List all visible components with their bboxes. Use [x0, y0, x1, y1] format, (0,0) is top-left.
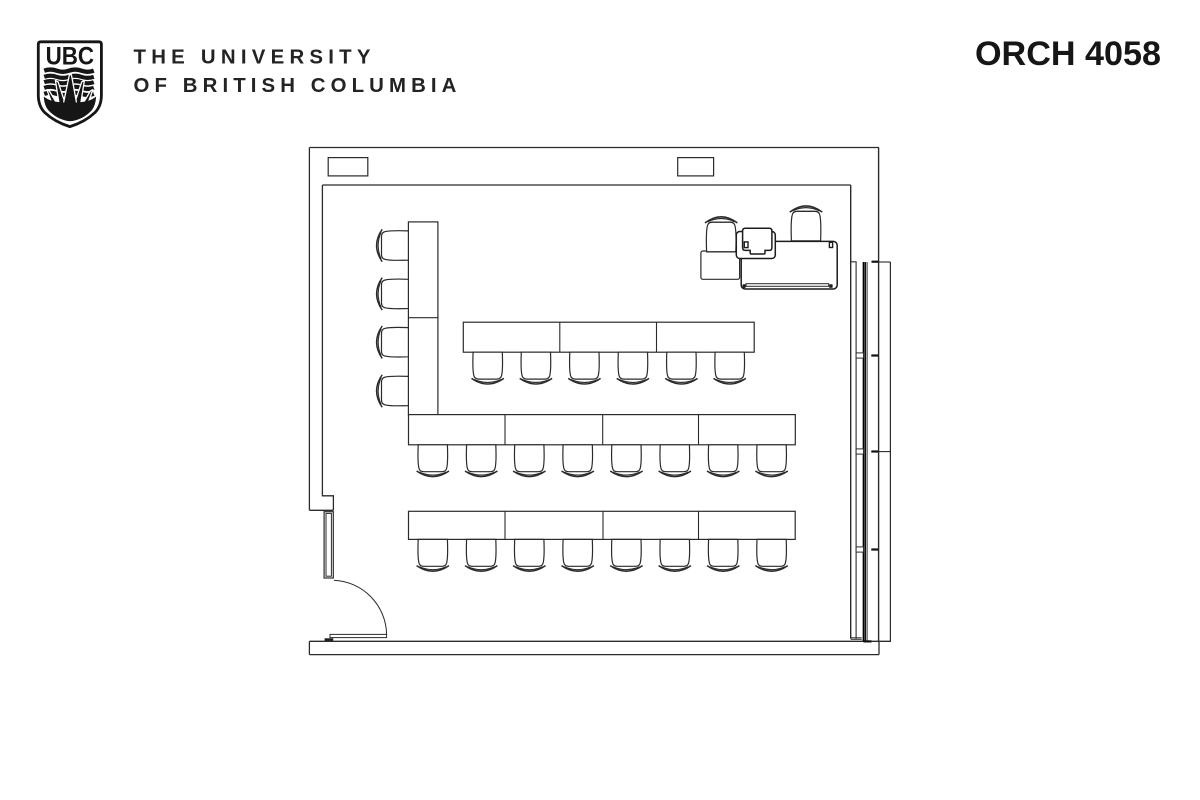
svg-text:ORCH 4058: ORCH 4058 — [975, 35, 1161, 73]
svg-text:UBC: UBC — [46, 43, 95, 70]
